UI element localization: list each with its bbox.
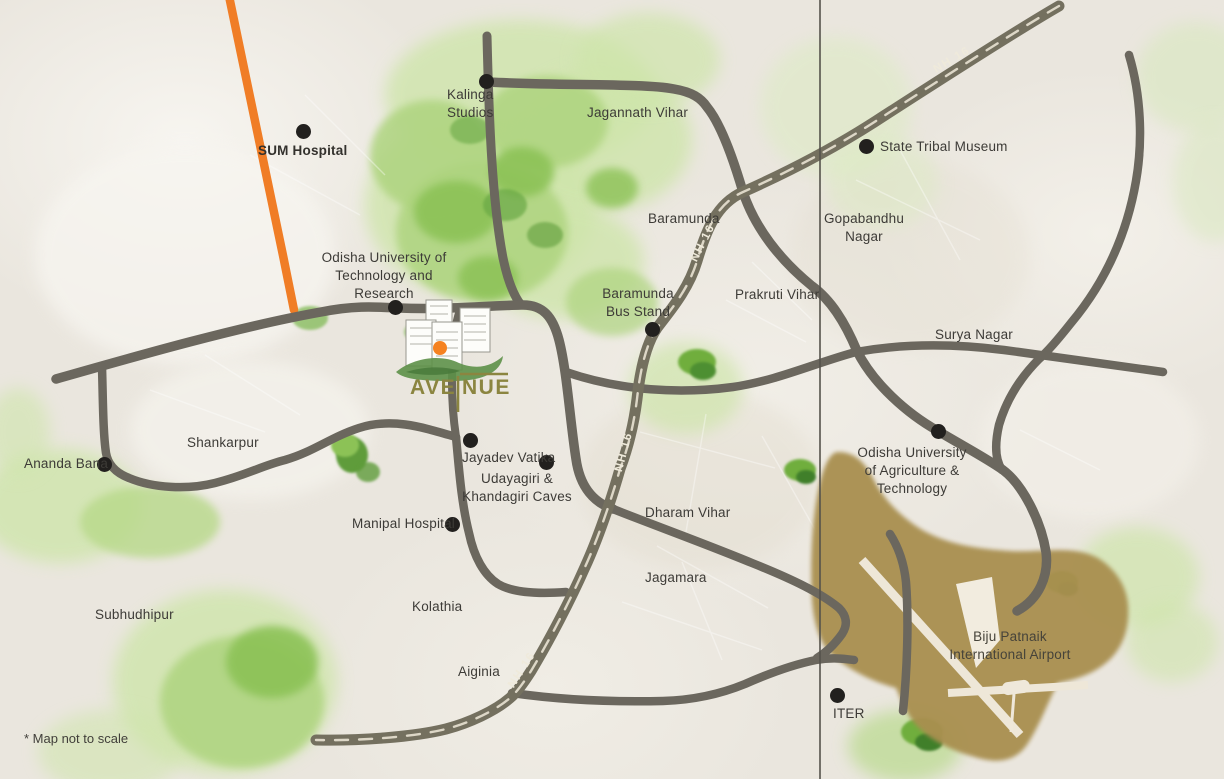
place-label-sum-hospital: SUM Hospital bbox=[258, 142, 347, 160]
place-label-aiginia: Aiginia bbox=[458, 663, 500, 681]
place-label-outr: Odisha University of Technology and Rese… bbox=[322, 249, 447, 302]
brand-logo: AVE NUE bbox=[396, 300, 511, 412]
marker-state-tribal-museum bbox=[859, 139, 874, 154]
place-label-baramunda-bus-stand: Baramunda Bus Stand bbox=[602, 285, 674, 321]
place-label-kalinga-studios: Kalinga Studios bbox=[447, 86, 493, 122]
place-label-ouat: Odisha University of Agriculture & Techn… bbox=[857, 444, 966, 497]
place-label-surya-nagar: Surya Nagar bbox=[935, 326, 1013, 344]
marker-sum-hospital bbox=[296, 124, 311, 139]
map-disclaimer: * Map not to scale bbox=[24, 731, 128, 746]
logo-location-dot bbox=[433, 341, 447, 355]
place-label-jayadev-vatika: Jayadev Vatika bbox=[462, 449, 555, 467]
place-label-manipal-hospital: Manipal Hospital bbox=[352, 515, 455, 533]
location-map: AVE NUE NH 16 NH 16 NH 16 NH 16 SUM Hosp… bbox=[0, 0, 1224, 779]
airport-label: Biju Patnaik International Airport bbox=[949, 628, 1070, 664]
place-label-state-tribal-museum: State Tribal Museum bbox=[880, 138, 1008, 156]
place-label-udayagiri-caves: Udayagiri & Khandagiri Caves bbox=[462, 470, 572, 506]
place-label-jagannath-vihar: Jagannath Vihar bbox=[587, 104, 688, 122]
place-label-gopabandhu-nagar: Gopabandhu Nagar bbox=[824, 210, 904, 246]
place-label-baramunda: Baramunda bbox=[648, 210, 720, 228]
place-label-kolathia: Kolathia bbox=[412, 598, 462, 616]
place-label-dharam-vihar: Dharam Vihar bbox=[645, 504, 730, 522]
place-label-subhudhipur: Subhudhipur bbox=[95, 606, 174, 624]
marker-iter bbox=[830, 688, 845, 703]
place-label-iter: ITER bbox=[833, 705, 865, 723]
place-label-jagamara: Jagamara bbox=[645, 569, 707, 587]
logo-text-left: AVE bbox=[410, 376, 456, 399]
logo-text-right: NUE bbox=[462, 376, 511, 399]
road-bottom-branch bbox=[512, 658, 854, 701]
place-label-shankarpur: Shankarpur bbox=[187, 434, 259, 452]
marker-baramunda-bus-stand bbox=[645, 322, 660, 337]
marker-jayadev-vatika bbox=[463, 433, 478, 448]
marker-ouat bbox=[931, 424, 946, 439]
place-label-prakruti-vihar: Prakruti Vihar bbox=[735, 286, 819, 304]
page-fold-line bbox=[819, 0, 821, 779]
place-label-ananda-bana: Ananda Bana bbox=[24, 455, 108, 473]
